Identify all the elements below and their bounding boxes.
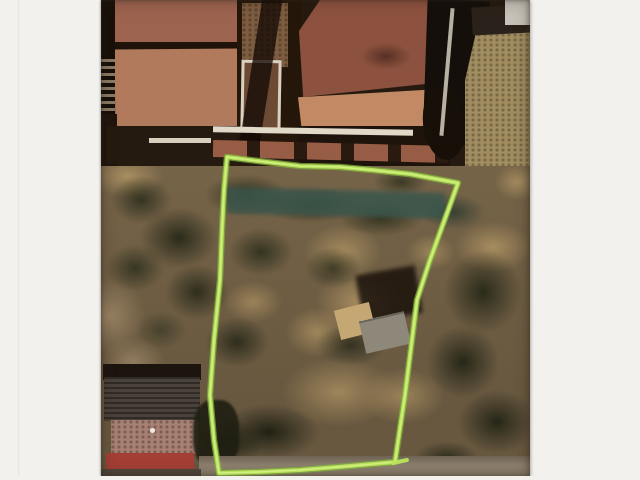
aerial-photo — [101, 0, 530, 476]
bottom-road-strip — [199, 456, 530, 476]
paper-bottom-margin — [0, 476, 640, 480]
khaki-ground-topright — [465, 18, 530, 166]
bottomleft-building-red-strip — [106, 453, 194, 470]
photographed-paper-sheet: Photograph of a printed aerial photo: a … — [0, 0, 640, 480]
bottomleft-building-dark-roof — [104, 377, 200, 421]
aerial-photo-scene — [101, 0, 530, 476]
bottom-road-strip-left — [101, 469, 201, 476]
white-wall-fragment — [149, 138, 211, 143]
rooftop-white-dot — [150, 428, 155, 433]
bottomleft-building-pink-roof — [111, 420, 198, 454]
photo-left-edge-shadow-top — [101, 0, 115, 56]
paper-crease — [18, 0, 20, 480]
right-house-upper-roof — [299, 0, 439, 97]
left-house-upper-roof — [114, 0, 237, 44]
striped-stair-structure — [101, 55, 115, 115]
left-house-lower-roof — [115, 48, 239, 130]
light-road-patch-corner — [505, 0, 530, 25]
